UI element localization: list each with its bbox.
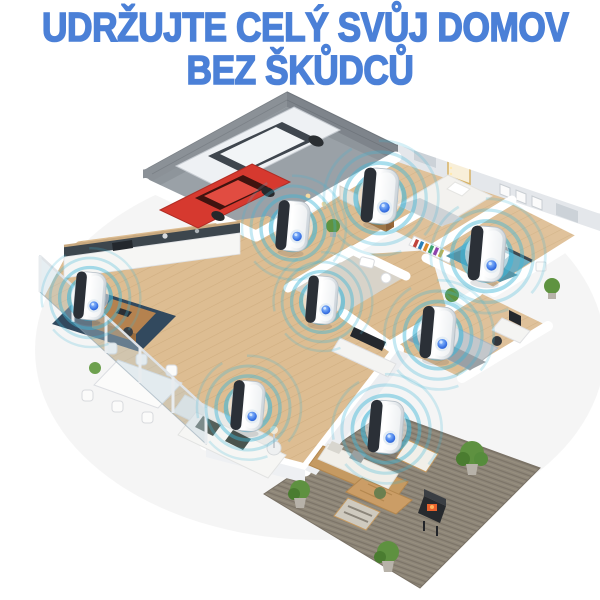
plant-pot [466, 464, 478, 475]
plant-pot [548, 293, 556, 299]
chair [112, 401, 123, 412]
vanity-bulb [450, 167, 452, 169]
chair [142, 412, 153, 423]
plant-pot [294, 498, 306, 508]
headline: UDRŽUJTE CELÝ SVŮJ DOMOV BEZ ŠKŮDCŮ [0, 6, 600, 91]
advertisement-image: UDRŽUJTE CELÝ SVŮJ DOMOV BEZ ŠKŮDCŮ [0, 0, 600, 600]
plant-pot [382, 561, 394, 572]
plant-foliage [474, 452, 488, 466]
sink [162, 233, 167, 238]
balcony-plant [89, 362, 101, 374]
kitchen-item [195, 229, 199, 233]
plant-foliage [544, 278, 560, 294]
headline-line-1: UDRŽUJTE CELÝ SVŮJ DOMOV [42, 6, 558, 49]
chair [82, 390, 93, 401]
vanity-bulb [450, 173, 452, 175]
table-bowl-plant [374, 487, 386, 499]
toilet [381, 273, 391, 283]
grill-flame [430, 505, 434, 509]
headline-line-2: BEZ ŠKŮDCŮ [42, 49, 558, 92]
plant-foliage [456, 452, 470, 466]
